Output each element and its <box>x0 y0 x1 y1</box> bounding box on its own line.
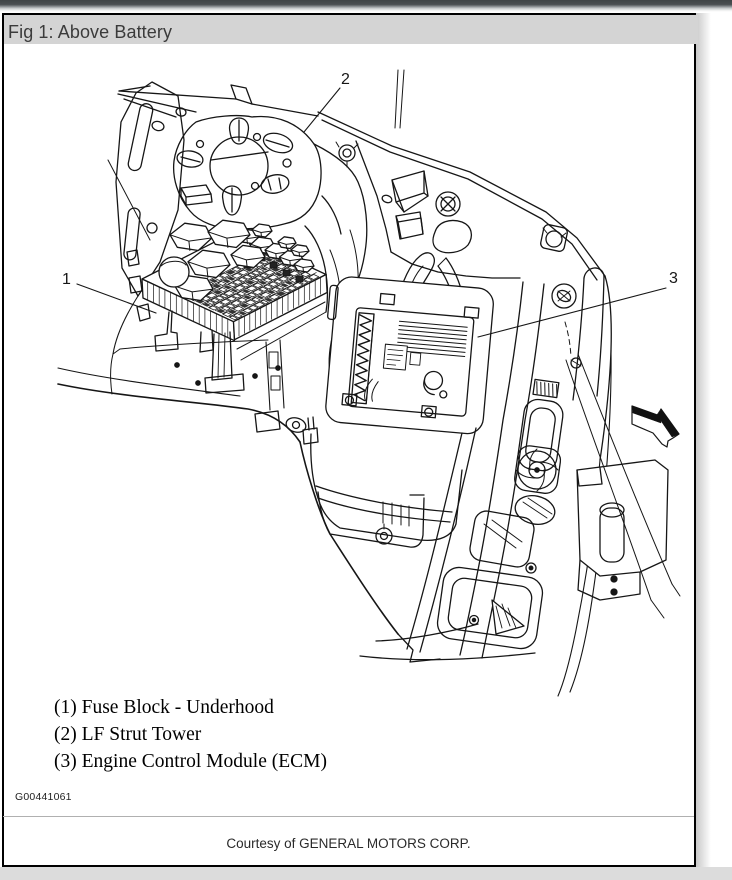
svg-text:1: 1 <box>62 271 71 288</box>
svg-text:2: 2 <box>341 71 350 88</box>
svg-text:3: 3 <box>669 270 678 287</box>
